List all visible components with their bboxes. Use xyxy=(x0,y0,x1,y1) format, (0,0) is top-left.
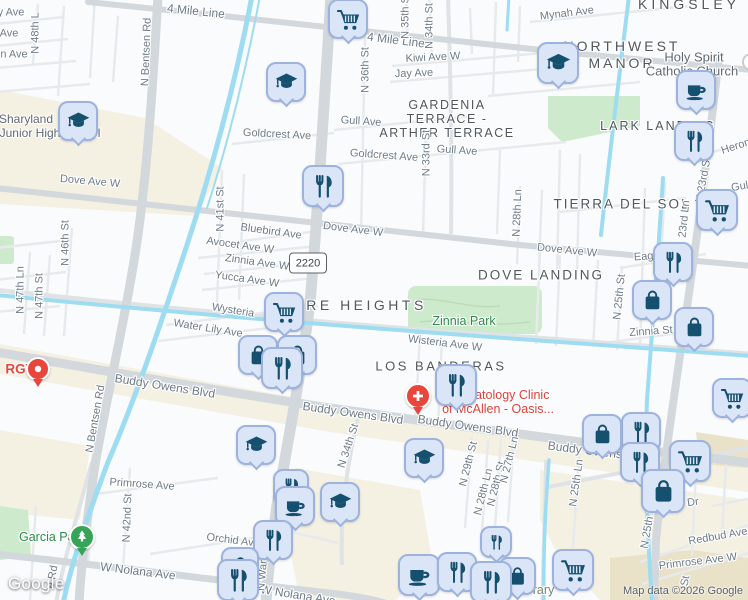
neigh-label: DOVE LANDING xyxy=(478,268,604,282)
route-shield-2220: 2220 xyxy=(289,253,327,274)
restaurant-marker[interactable] xyxy=(470,561,512,600)
google-logo[interactable]: Google xyxy=(8,574,65,594)
location-dot-icon xyxy=(30,361,46,377)
grocery-store-marker[interactable] xyxy=(696,189,738,234)
neigh-label: NORTHWEST xyxy=(564,39,681,53)
grocery-store-marker[interactable] xyxy=(264,292,304,335)
street-label: Dr xyxy=(686,497,699,510)
neigh-label: TIERRA DEL SOL xyxy=(553,197,690,211)
pine-tree-icon xyxy=(73,528,91,546)
street-label: N 28th Ln xyxy=(512,189,525,237)
grocery-store-marker[interactable] xyxy=(552,549,594,594)
school-marker[interactable] xyxy=(537,42,579,87)
grocery-store-marker[interactable] xyxy=(712,378,748,421)
medical-cross-icon xyxy=(409,387,427,405)
neigh-label: TERRACE - xyxy=(407,113,488,126)
park-tree-marker[interactable] xyxy=(69,524,95,556)
restaurant-marker[interactable] xyxy=(435,364,477,409)
street-label: N 46th St xyxy=(61,220,72,266)
street-label: N 48th L xyxy=(31,12,42,54)
restaurant-marker[interactable] xyxy=(261,347,303,392)
shopping-bag-marker[interactable] xyxy=(641,469,685,516)
street-label: N 47th St xyxy=(35,273,46,319)
school-name-label[interactable]: Sharyland xyxy=(0,113,53,125)
street-label: N 33rd St xyxy=(422,130,433,176)
map-attribution[interactable]: Map data ©2026 Google xyxy=(623,585,743,597)
street-label: N 41st St xyxy=(216,186,227,231)
restaurant-marker[interactable] xyxy=(653,242,693,285)
shopping-bag-marker[interactable] xyxy=(632,280,672,323)
street-label: n Ave xyxy=(0,50,27,61)
street-label: N 34th St xyxy=(425,3,436,49)
medical-clinic-marker[interactable] xyxy=(405,383,431,415)
park-name-label[interactable]: Zinnia Park xyxy=(432,315,495,328)
cafe-marker[interactable] xyxy=(398,554,440,599)
restaurant-marker[interactable] xyxy=(302,165,344,210)
street-label: y Ave xyxy=(0,8,24,19)
church-name-label[interactable]: Holy Spirit xyxy=(664,51,723,64)
street-label: N 36th St xyxy=(361,47,372,93)
school-marker[interactable] xyxy=(58,101,98,144)
restaurant-marker[interactable] xyxy=(480,526,512,561)
street-label: Ave xyxy=(0,29,18,40)
school-marker[interactable] xyxy=(266,62,306,105)
neigh-label: ARTHER TERRACE xyxy=(379,127,514,140)
grocery-store-marker[interactable] xyxy=(328,0,368,42)
restaurant-marker[interactable] xyxy=(217,559,259,600)
shopping-bag-marker[interactable] xyxy=(582,414,622,457)
school-marker[interactable] xyxy=(320,482,360,525)
street-label: N 42nd St xyxy=(122,493,135,542)
neigh-label: KINGSLEY xyxy=(638,0,740,11)
map-canvas[interactable]: y AveAven AveN 48th L4 Mile Line4 Mile L… xyxy=(0,0,748,600)
cafe-marker[interactable] xyxy=(676,70,716,113)
restaurant-marker[interactable] xyxy=(253,520,293,563)
neigh-label: GARDENIA xyxy=(408,99,485,112)
shopping-bag-marker[interactable] xyxy=(674,307,714,350)
school-marker[interactable] xyxy=(404,438,444,481)
hospital-location-marker[interactable] xyxy=(26,357,50,387)
street-label: N 47th Ln xyxy=(16,266,27,314)
street-label: Jay Ave xyxy=(395,68,434,80)
street-label: N 35th St xyxy=(401,0,412,39)
school-marker[interactable] xyxy=(236,425,276,468)
restaurant-marker[interactable] xyxy=(674,121,714,164)
